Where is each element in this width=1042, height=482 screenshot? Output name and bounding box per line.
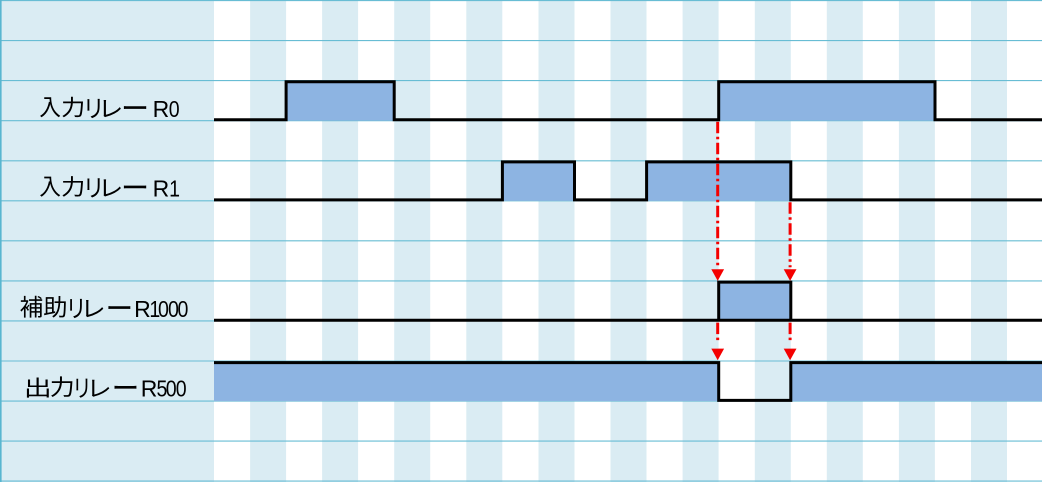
svg-text:R: R xyxy=(134,296,151,322)
svg-text:0: 0 xyxy=(169,96,180,122)
svg-text:0: 0 xyxy=(176,376,187,402)
svg-text:R: R xyxy=(141,376,158,402)
svg-text:0: 0 xyxy=(178,296,189,322)
svg-text:1: 1 xyxy=(169,176,180,202)
svg-text:R: R xyxy=(153,175,170,201)
svg-text:R: R xyxy=(153,96,170,122)
